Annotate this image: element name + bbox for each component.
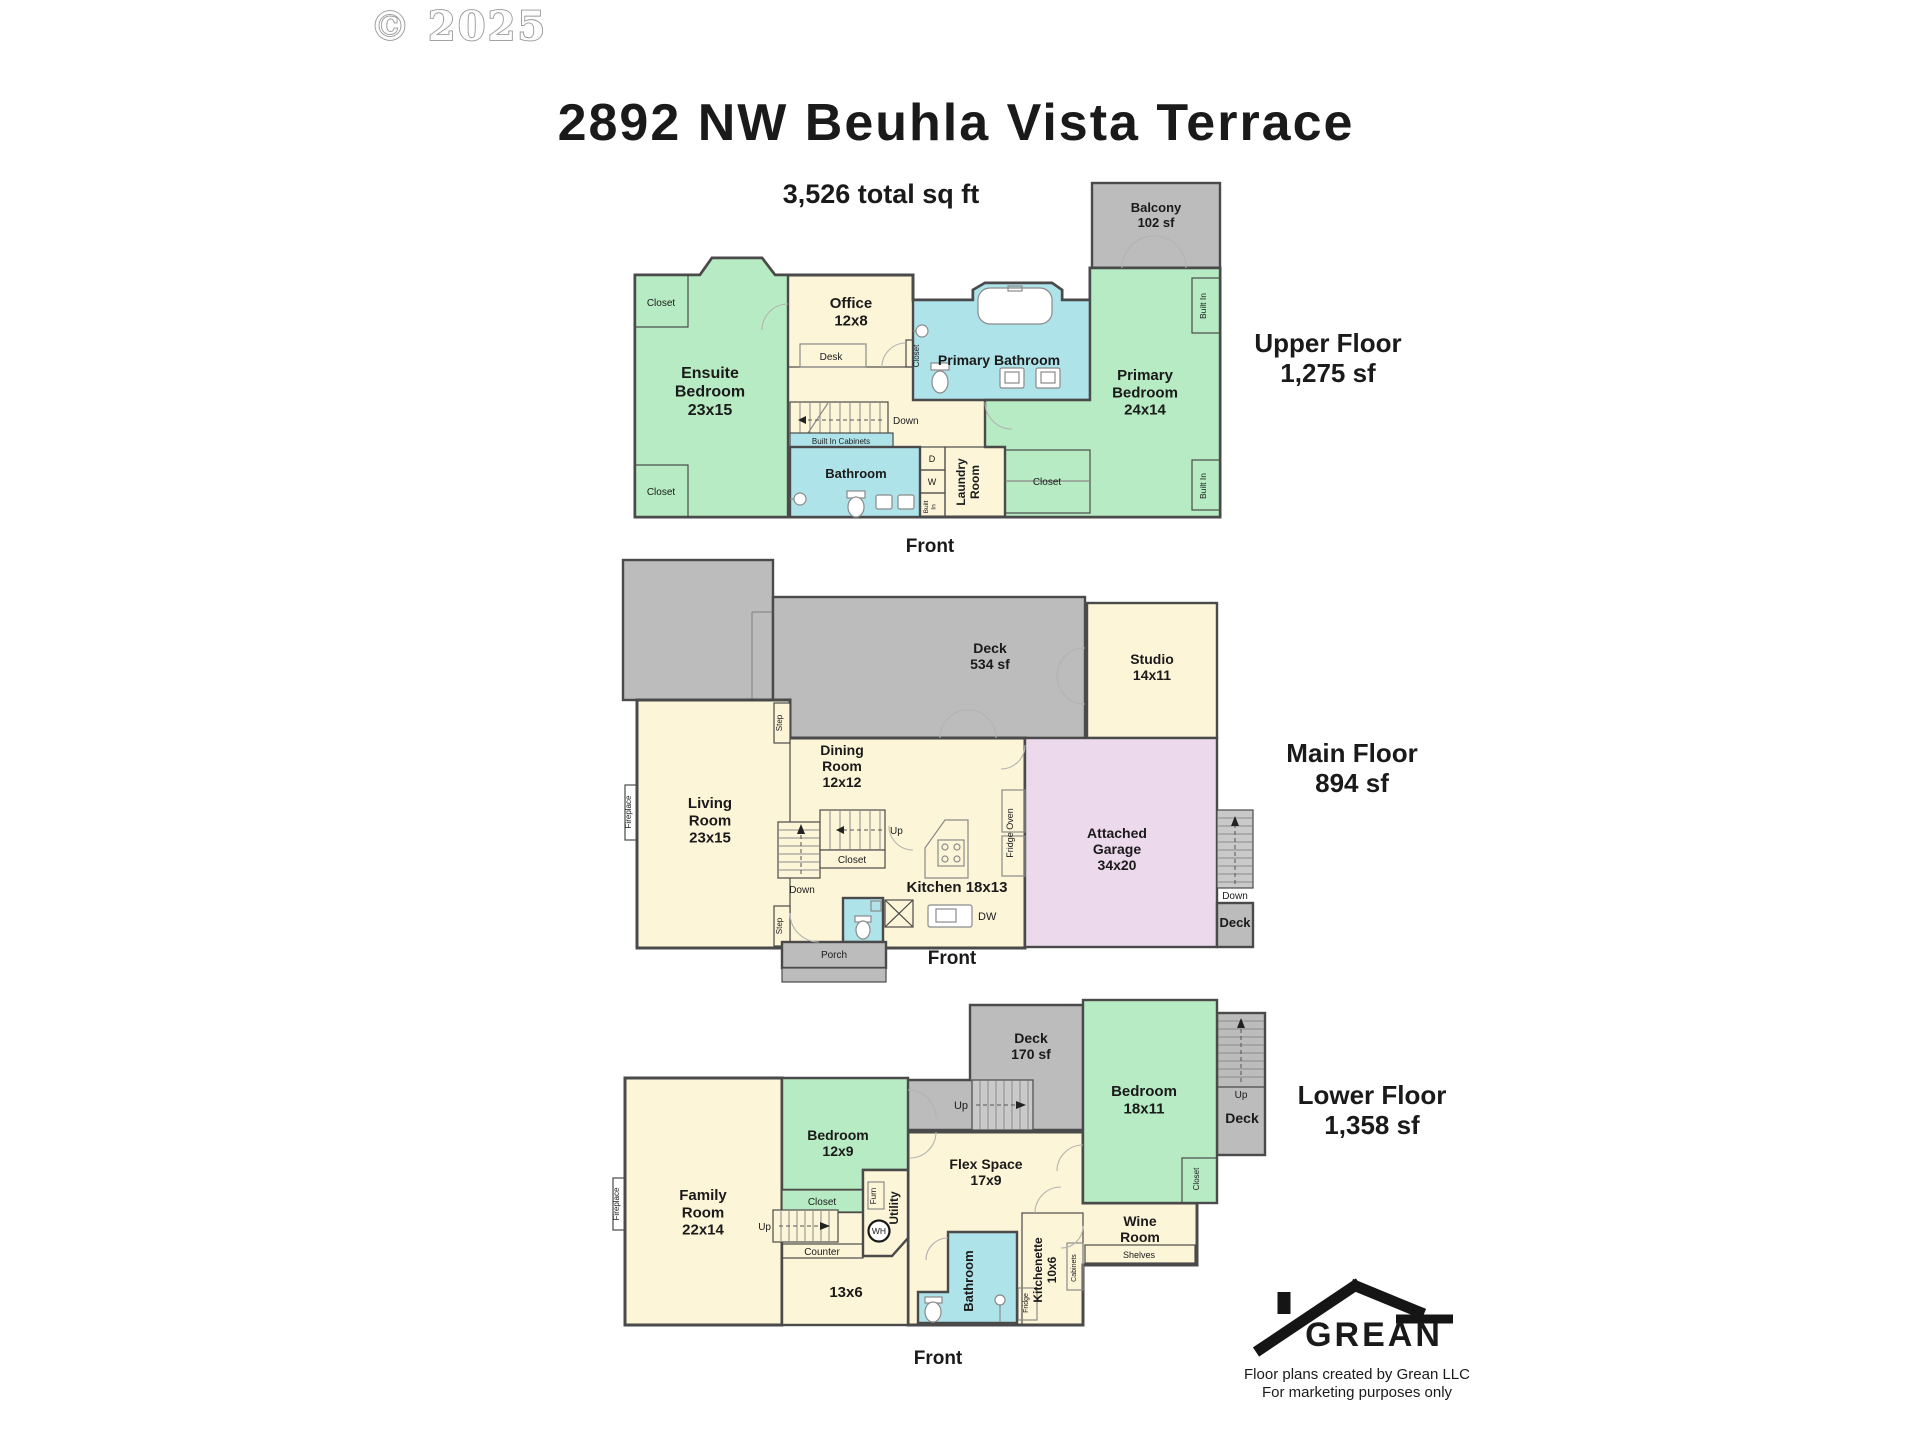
label-down: Down <box>893 416 919 427</box>
main-deck-left-area <box>623 560 773 700</box>
lower-deck-right-area <box>1217 1013 1265 1155</box>
label-step: Step <box>775 917 784 934</box>
lower-stairs-up-mid <box>972 1080 1033 1130</box>
main-porch-step <box>782 968 886 982</box>
sink-icon <box>876 495 892 509</box>
label-up: Up <box>954 1100 968 1112</box>
sink-icon <box>1000 368 1024 388</box>
bathtub-icon <box>978 288 1052 324</box>
label-fridge-oven: Fridge Oven <box>1005 808 1015 858</box>
label-fridge: Fridge <box>1023 1293 1030 1313</box>
label-counter: Counter <box>804 1247 840 1258</box>
label-primary-bathroom: Primary Bathroom <box>938 352 1060 368</box>
label-living-room: LivingRoom23x15 <box>688 795 732 847</box>
toilet-icon <box>856 921 870 939</box>
label-desk: Desk <box>820 352 844 363</box>
label-dryer: D <box>929 454 936 464</box>
main-deck-area <box>773 597 1085 738</box>
label-shelves: Shelves <box>1123 1250 1156 1260</box>
toilet-icon <box>932 371 948 393</box>
pedestal-sink-icon <box>916 325 928 337</box>
label-wine-room: WineRoom <box>1120 1213 1160 1245</box>
label-closet: Closet <box>808 1197 837 1208</box>
label-cabinets: Cabinets <box>1071 1254 1078 1282</box>
upper-floor-title: Upper Floor1,275 sf <box>1254 328 1401 388</box>
brand-name: GREAN <box>1305 1316 1443 1354</box>
label-family-room: FamilyRoom22x14 <box>679 1187 727 1239</box>
toilet-icon <box>848 497 864 517</box>
copyright-text: © 2025 <box>370 3 547 50</box>
main-floor-plan: Deck534 sf Studio14x11 DiningRoom12x12 L… <box>623 560 1418 982</box>
main-front-label: Front <box>928 948 977 969</box>
label-deck-right: Deck <box>1219 915 1251 930</box>
label-utility: Utility <box>887 1191 901 1225</box>
label-built-in-cabinets: Built In Cabinets <box>812 437 870 446</box>
floor-plan-canvas: © 2025 2892 NW Beuhla Vista Terrace 3,52… <box>0 0 1920 1440</box>
label-closet: Closet <box>647 298 676 309</box>
label-laundry-room: LaundryRoom <box>954 458 982 506</box>
label-closet: Closet <box>838 855 867 866</box>
label-closet-right: Closet <box>1192 1167 1201 1190</box>
pedestal-sink-icon <box>995 1295 1005 1305</box>
toilet-icon <box>925 1302 941 1322</box>
label-water-heater: WH <box>872 1226 886 1236</box>
label-up: Up <box>758 1222 771 1233</box>
grean-logo: GREAN Floor plans created by Grean LLC F… <box>1244 1283 1470 1401</box>
upper-stairs-down <box>790 402 888 437</box>
label-down: Down <box>789 885 815 896</box>
label-balcony: Balcony102 sf <box>1131 200 1182 230</box>
label-up: Up <box>1235 1090 1248 1101</box>
label-step: Step <box>775 714 784 731</box>
label-kitchen: Kitchen 18x13 <box>907 879 1008 896</box>
lower-front-label: Front <box>914 1348 963 1369</box>
sink-icon <box>898 495 914 509</box>
kitchen-sink-icon <box>928 905 972 927</box>
label-nook: 13x6 <box>829 1284 862 1301</box>
page-title: 2892 NW Beuhla Vista Terrace <box>558 94 1355 152</box>
label-furnace: Furn <box>869 1188 878 1204</box>
lower-room-utility <box>863 1170 908 1256</box>
label-porch: Porch <box>821 950 847 961</box>
label-office: Office12x8 <box>830 295 873 329</box>
label-dining-room: DiningRoom12x12 <box>820 742 864 790</box>
lower-stairs-up-left <box>773 1210 838 1242</box>
label-closet-primary: Closet <box>1033 477 1062 488</box>
label-bathroom: Bathroom <box>825 466 886 481</box>
label-down-right: Down <box>1222 891 1248 902</box>
total-sqft-label: 3,526 total sq ft <box>783 179 980 209</box>
label-bathroom: Bathroom <box>961 1250 976 1311</box>
label-deck: Deck534 sf <box>970 640 1010 672</box>
footer-caption-line2: For marketing purposes only <box>1262 1384 1453 1401</box>
label-fireplace: Fireplace <box>624 795 633 828</box>
floor-plan-page: © 2025 2892 NW Beuhla Vista Terrace 3,52… <box>0 0 1920 1440</box>
label-deck: Deck170 sf <box>1011 1030 1051 1062</box>
label-closet-hall: Closet <box>912 344 921 367</box>
label-deck-right: Deck <box>1225 1110 1259 1126</box>
sink-icon <box>1036 368 1060 388</box>
label-closet: Closet <box>647 487 676 498</box>
pedestal-sink-icon <box>794 493 806 505</box>
main-floor-title: Main Floor894 sf <box>1286 738 1417 798</box>
label-fireplace: Fireplace <box>612 1187 621 1220</box>
label-washer: W <box>928 477 937 487</box>
upper-floor-plan: Balcony102 sf EnsuiteBedroom23x15 Office… <box>635 183 1402 557</box>
label-studio: Studio14x11 <box>1130 651 1174 683</box>
label-up: Up <box>890 826 903 837</box>
footer-caption-line1: Floor plans created by Grean LLC <box>1244 1366 1470 1383</box>
label-dw: DW <box>978 911 997 923</box>
lower-floor-title: Lower Floor1,358 sf <box>1298 1080 1447 1140</box>
label-built-in-top: Built In <box>1198 293 1208 319</box>
label-built-in-bottom: Built In <box>1198 473 1208 499</box>
upper-front-label: Front <box>906 536 955 557</box>
